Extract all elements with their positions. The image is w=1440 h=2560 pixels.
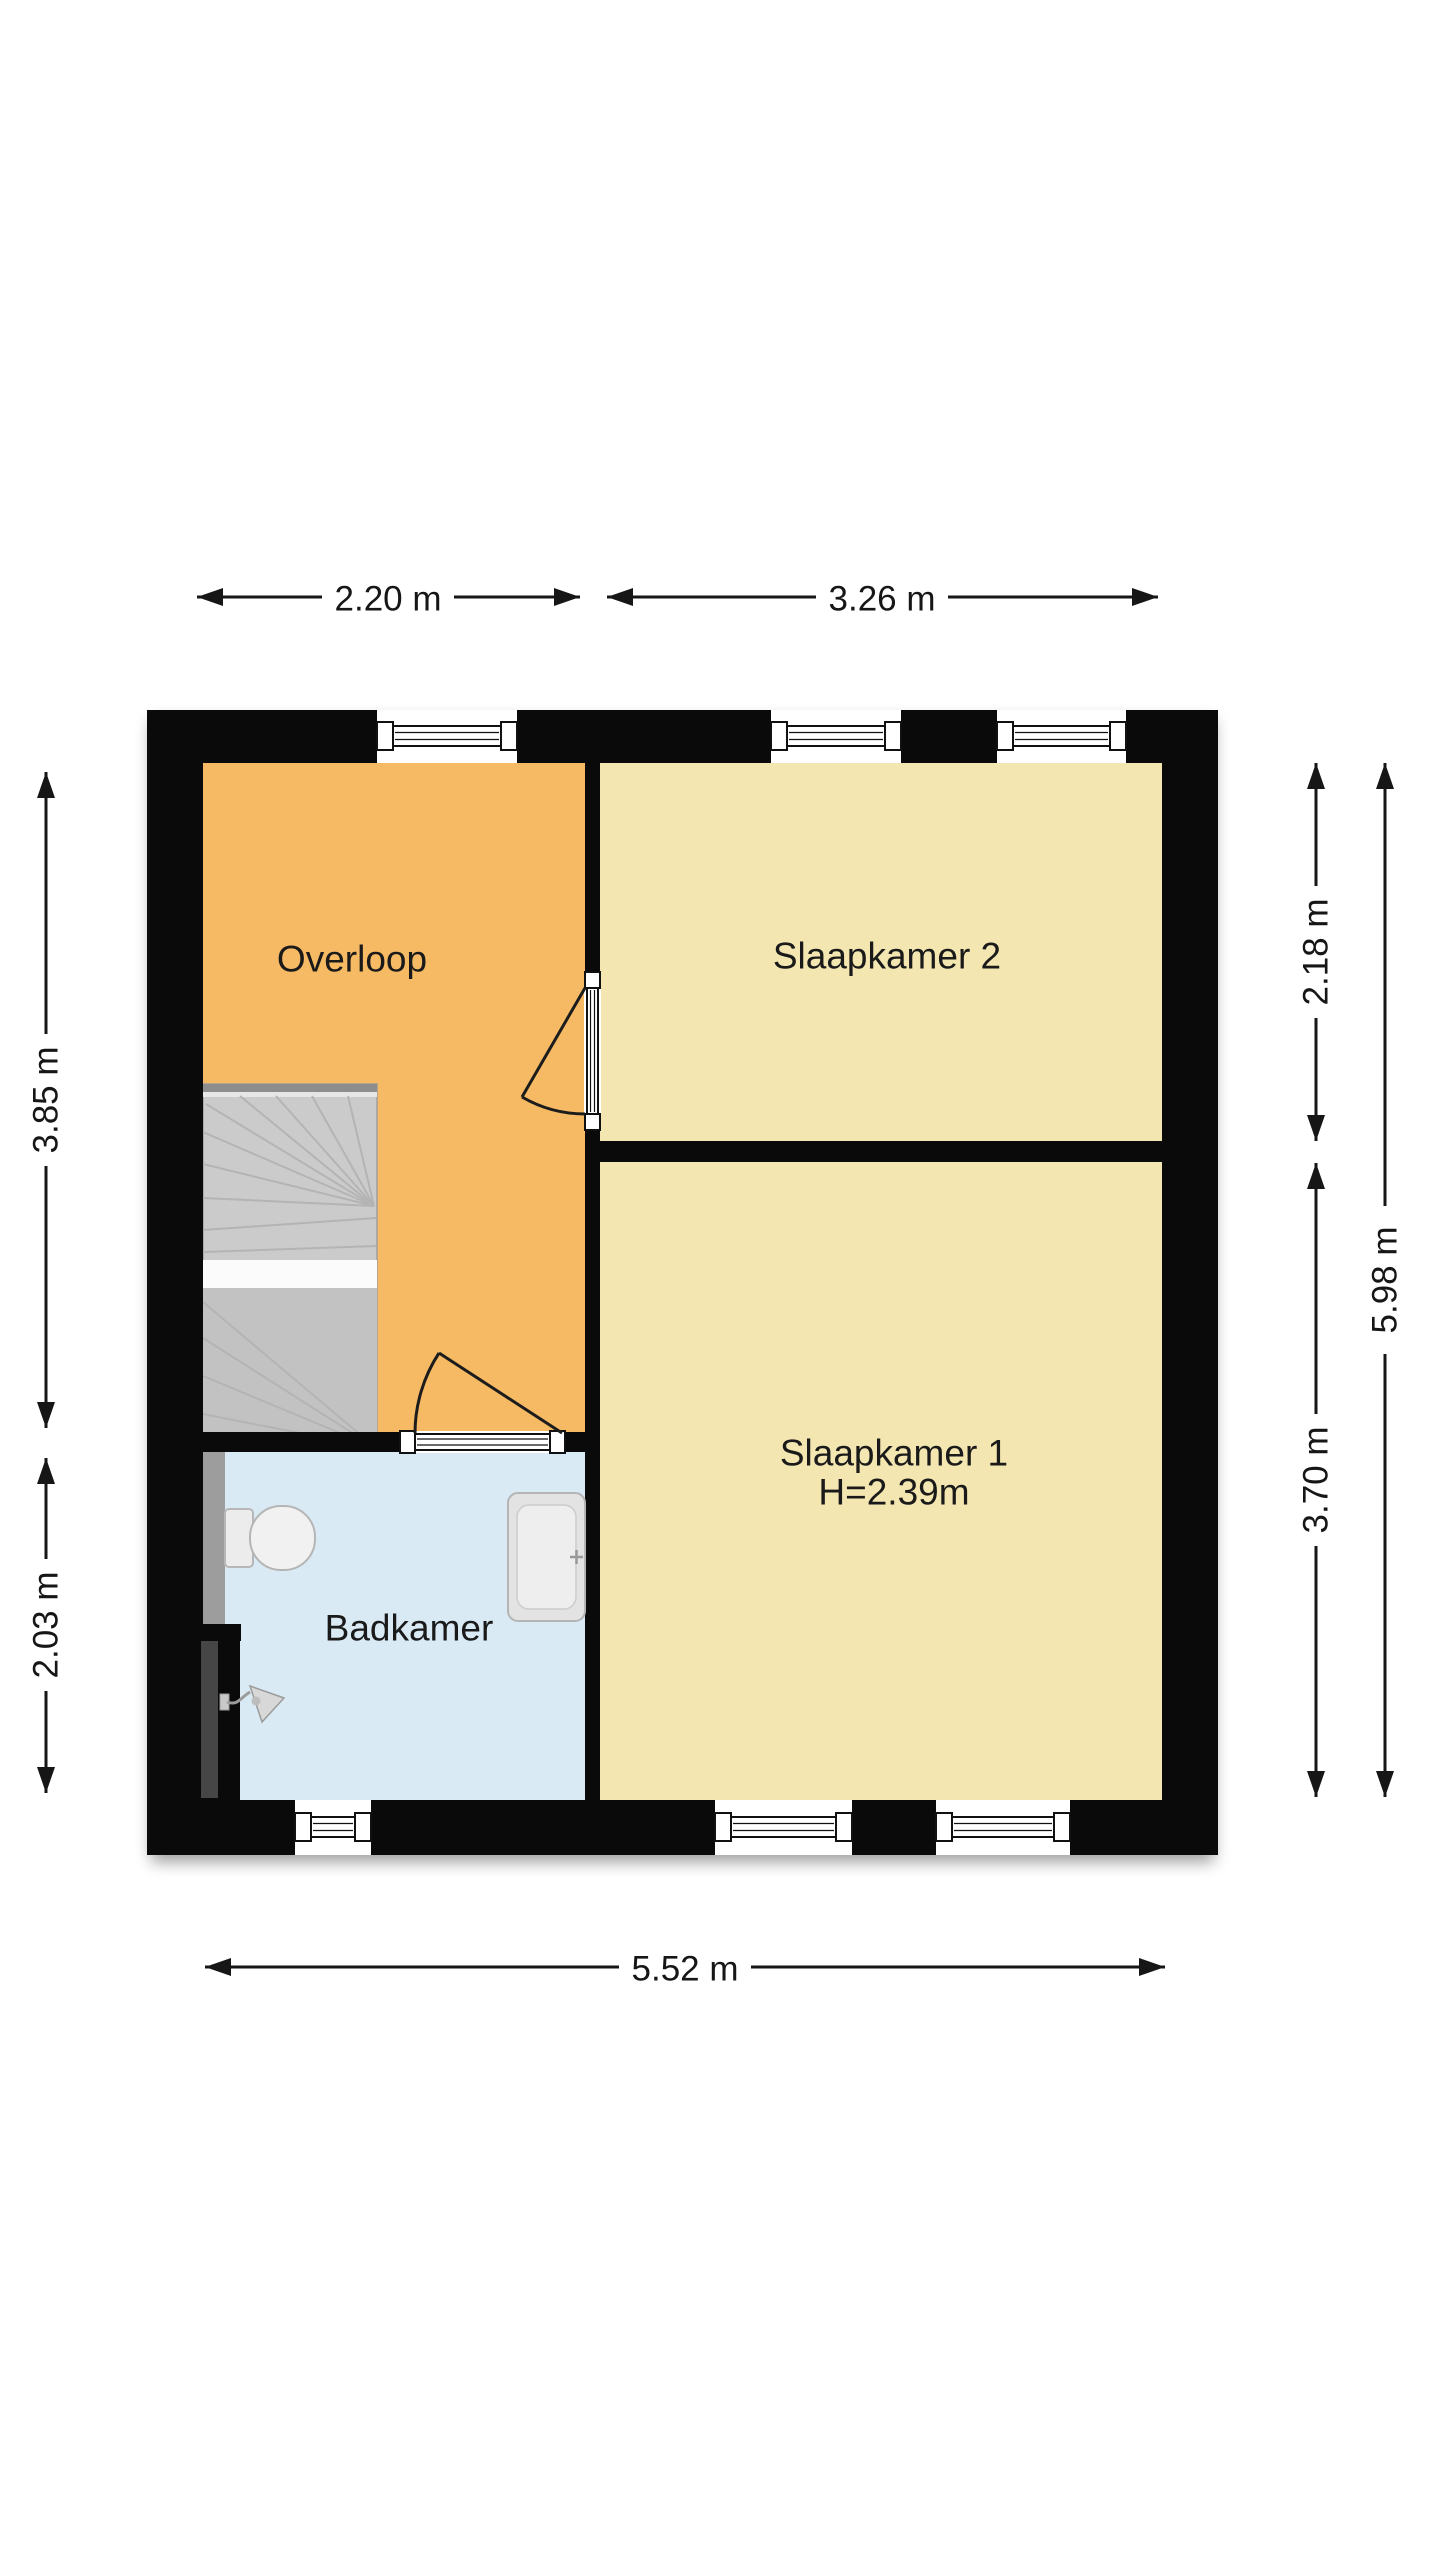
room-label-badkamer: Badkamer (325, 1608, 494, 1649)
dimension-left-2: 2.03 m (27, 1458, 66, 1793)
dimension-bottom: 5.52 m (205, 1950, 1165, 1989)
dimension-label: 3.70 m (1297, 1427, 1336, 1534)
window-top-3 (997, 710, 1126, 763)
duct-strip (201, 1641, 218, 1798)
floor-plan-page: Overloop Slaapkamer 2 Slaapkamer 1 H=2.3… (0, 0, 1440, 2560)
dimension-top-2: 3.26 m (607, 580, 1158, 619)
room-label-slaapkamer-1-height: H=2.39m (818, 1472, 969, 1513)
dimension-right-2: 3.70 m (1297, 1163, 1336, 1797)
room-label-overloop: Overloop (277, 939, 427, 980)
wall-exterior-left (147, 710, 203, 1855)
room-label-slaapkamer-2: Slaapkamer 2 (773, 936, 1001, 977)
room-label-slaapkamer-1: Slaapkamer 1 (780, 1433, 1008, 1474)
window-bottom-badkamer (295, 1800, 371, 1855)
window-top-2 (771, 710, 901, 763)
dimension-label: 3.26 m (829, 580, 936, 619)
window-bottom-slaapkamer1-b (936, 1800, 1070, 1855)
dimension-left-1: 3.85 m (27, 772, 66, 1428)
dimension-right-3: 5.98 m (1366, 763, 1405, 1797)
floor-plan-svg: Overloop Slaapkamer 2 Slaapkamer 1 H=2.3… (0, 0, 1440, 2560)
dimension-label: 5.98 m (1366, 1227, 1405, 1334)
window-bottom-slaapkamer1-a (715, 1800, 852, 1855)
wall-badkamer-stub (203, 1624, 241, 1641)
sink (508, 1493, 585, 1621)
wall-between-bedrooms (600, 1141, 1162, 1162)
window-top-1 (377, 710, 517, 763)
dimension-label: 2.18 m (1297, 899, 1336, 1006)
dimension-label: 2.20 m (335, 580, 442, 619)
stairs (203, 1084, 377, 1448)
dimension-label: 2.03 m (27, 1572, 66, 1679)
wall-exterior-right (1162, 710, 1218, 1855)
toilet (225, 1506, 315, 1570)
wall-interior-vertical (585, 763, 600, 1800)
dimension-right-1: 2.18 m (1297, 763, 1336, 1141)
dimension-top-1: 2.20 m (197, 580, 580, 619)
dimension-label: 5.52 m (632, 1950, 739, 1989)
dimension-label: 3.85 m (27, 1047, 66, 1154)
